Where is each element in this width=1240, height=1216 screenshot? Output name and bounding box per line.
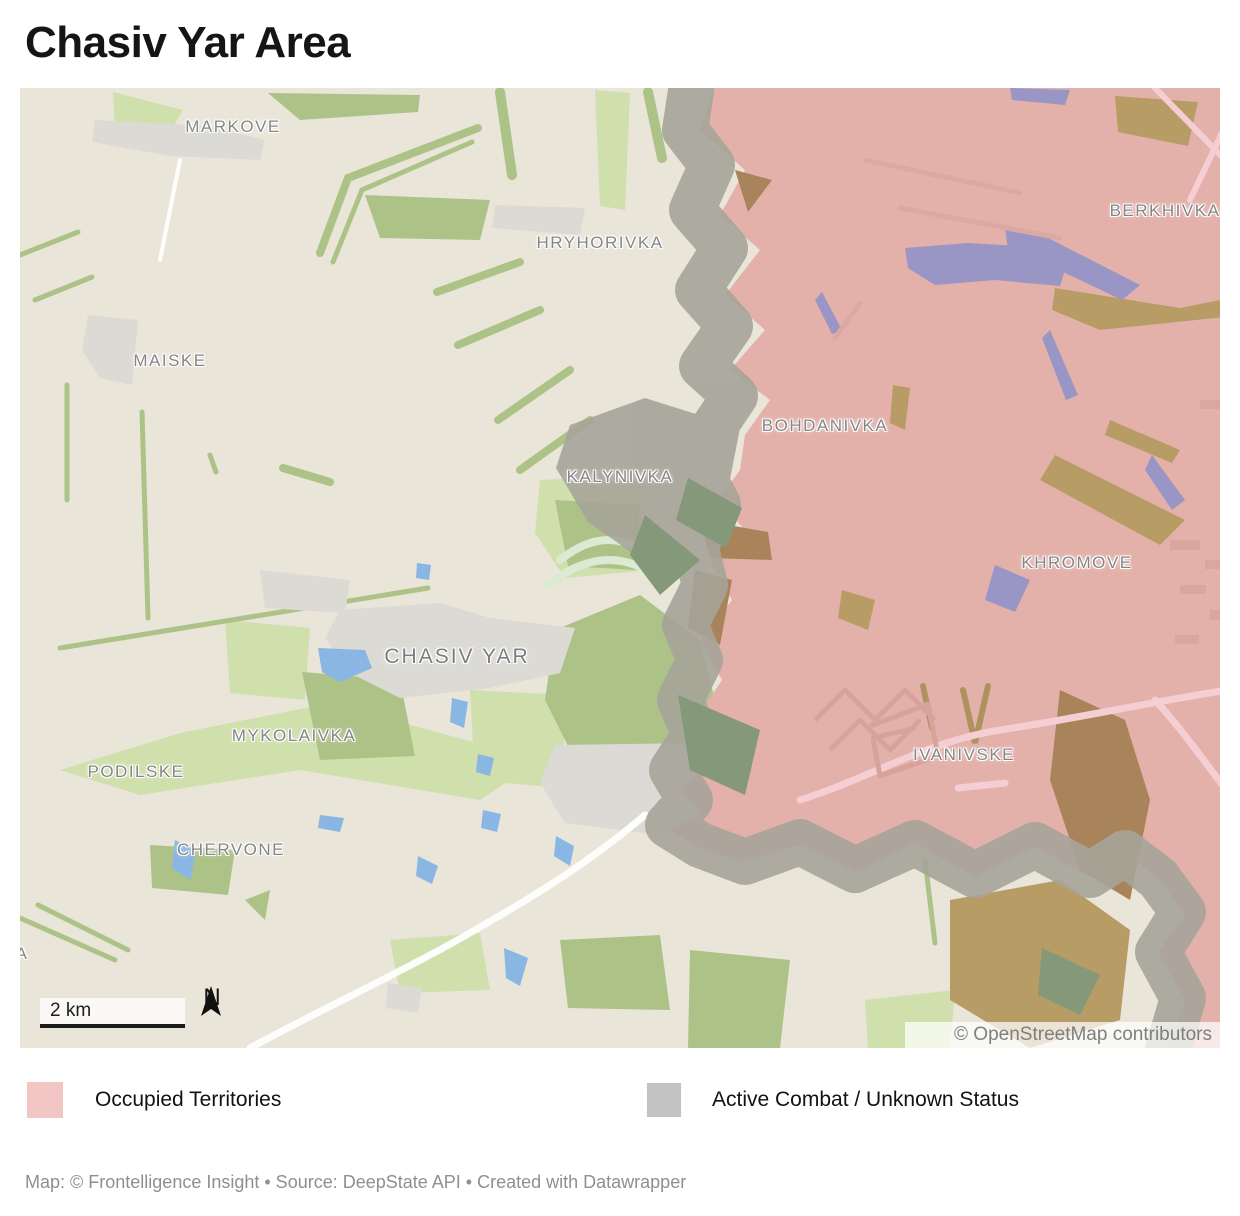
legend-label-occupied: Occupied Territories [95,1088,281,1112]
legend-label-combat: Active Combat / Unknown Status [712,1088,1019,1112]
roads [160,160,645,1048]
scale-bar: 2 km [40,998,185,1028]
map-label-mykolaivka: MYKOLAIVKA [232,726,357,746]
map: MARKOVE HRYHORIVKA BERKHIVKA MAISKE BOHD… [20,88,1220,1048]
map-label-maiske: MAISKE [133,351,206,371]
map-label-hryhorivka: HRYHORIVKA [536,233,663,253]
map-attribution: © OpenStreetMap contributors [905,1022,1220,1048]
legend-swatch-occupied [27,1082,63,1118]
legend-swatch-combat [647,1083,681,1117]
footer-credits: Map: © Frontelligence Insight • Source: … [25,1172,686,1193]
compass: N [198,986,226,1010]
map-label-podilske: PODILSKE [87,762,184,782]
map-label-kalynivka: KALYNIVKA [567,467,674,487]
legend-item-occupied: Occupied Territories [27,1082,281,1118]
map-label-markove: MARKOVE [185,117,281,137]
scale-bar-label: 2 km [50,1000,91,1022]
page-title: Chasiv Yar Area [25,18,350,68]
legend-item-combat: Active Combat / Unknown Status [647,1083,1019,1117]
map-label-berkhivka: BERKHIVKA [1110,201,1220,221]
map-label-partial: A [20,944,28,964]
map-label-chervone: CHERVONE [177,840,285,860]
compass-needle-icon [198,986,224,1016]
map-label-ivanivske: IVANIVSKE [913,745,1015,765]
map-label-khromove: KHROMOVE [1021,553,1132,573]
map-label-bohdanivka: BOHDANIVKA [762,416,888,436]
occupied-territories-region [670,88,1220,1048]
map-label-chasiv-yar: CHASIV YAR [384,645,529,669]
